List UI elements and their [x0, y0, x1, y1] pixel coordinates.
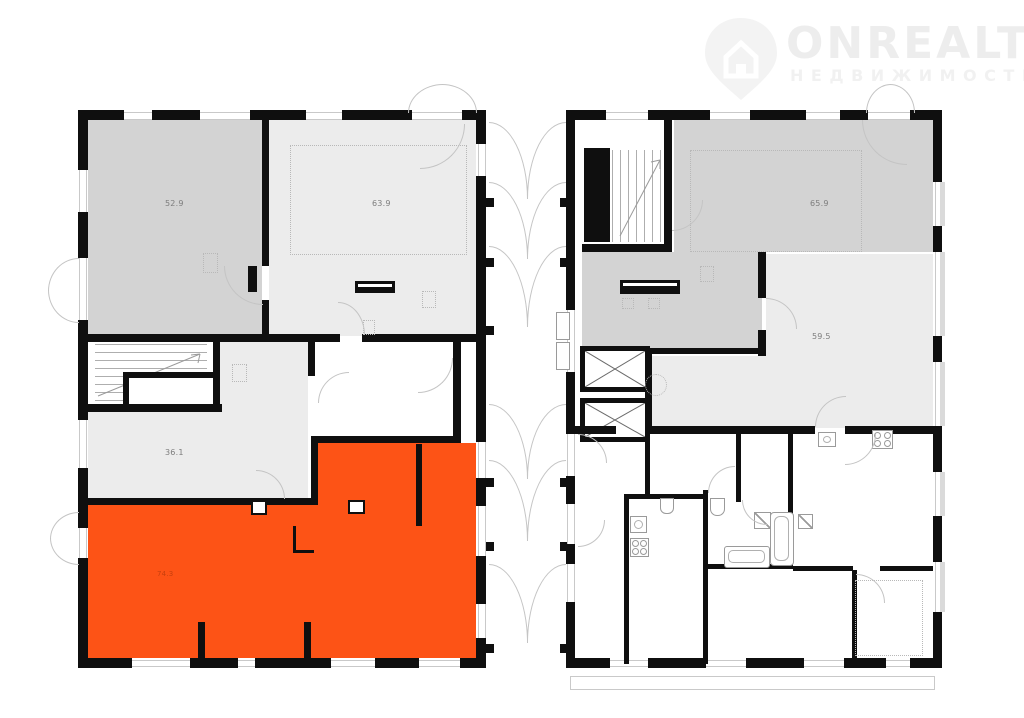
- toilet-icon: [660, 498, 674, 514]
- bathtub-icon: [724, 546, 770, 568]
- house-pin-icon: [700, 16, 782, 102]
- room-52-9-area-label: 52.9: [165, 200, 184, 208]
- room-selected-area-label: 74.3: [157, 571, 173, 578]
- toilet-icon: [710, 498, 725, 516]
- room-59-5-area-label: 59.5: [812, 333, 831, 341]
- kitchen-sink-icon: [630, 516, 647, 533]
- elevator-shaft: [580, 346, 650, 392]
- elevator-shaft: [580, 398, 650, 442]
- stair-direction-arrow: [610, 148, 670, 244]
- floor-plan: ONREALT НЕДВИЖИМОСТЬ 52.9 63.9 36.1: [0, 0, 1024, 718]
- watermark-brand: ONREALT: [786, 22, 1024, 66]
- room-36-1-area-label: 36.1: [165, 449, 184, 457]
- bathtub-icon: [770, 512, 794, 566]
- washing-machine-icon: [798, 514, 813, 529]
- kitchen-sink-icon: [818, 432, 836, 447]
- stove-icon: [630, 538, 649, 557]
- watermark: ONREALT НЕДВИЖИМОСТЬ: [698, 14, 1018, 98]
- watermark-subtitle: НЕДВИЖИМОСТЬ: [790, 68, 1024, 84]
- room-52-9[interactable]: 52.9: [88, 120, 262, 336]
